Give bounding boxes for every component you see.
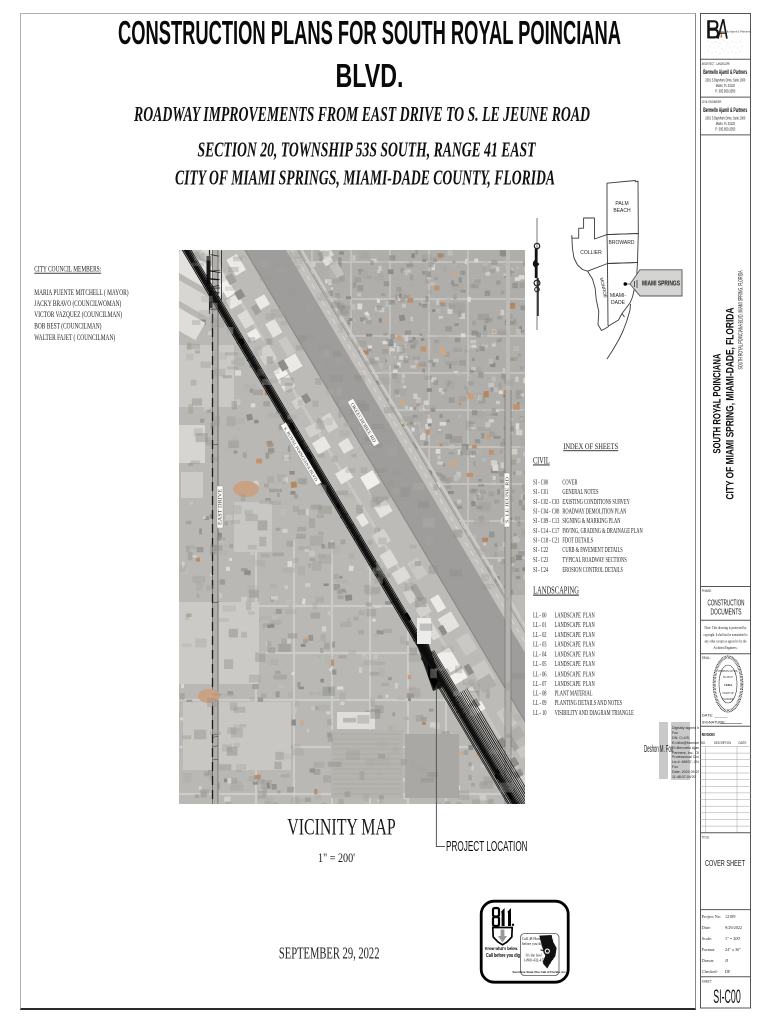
svg-text:LL - 00: LL - 00 <box>533 613 547 620</box>
svg-text:LANDSCAPE PLAN: LANDSCAPE PLAN <box>555 681 596 688</box>
svg-text:Note: This drawing is protecte: Note: This drawing is protected by <box>705 625 747 630</box>
svg-text:MARIA PUENTE MITCHELL ( MAYOR): MARIA PUENTE MITCHELL ( MAYOR) <box>34 288 129 298</box>
svg-text:Drawn:: Drawn: <box>702 958 715 963</box>
svg-text:COLLIER: COLLIER <box>580 250 602 256</box>
svg-text:SIGNING & MARKING PLAN: SIGNING & MARKING PLAN <box>562 518 621 525</box>
svg-text:GENERAL NOTES: GENERAL NOTES <box>562 489 598 496</box>
svg-text:LL - 03: LL - 03 <box>533 642 547 649</box>
svg-text:SI - C04 - C08: SI - C04 - C08 <box>533 509 559 516</box>
svg-text:LL - 05: LL - 05 <box>533 661 547 668</box>
svg-text:BEACH: BEACH <box>613 208 631 214</box>
svg-text:P: 305.859.2050: P: 305.859.2050 <box>715 89 735 94</box>
svg-text:It's the law!: It's the law! <box>526 954 543 958</box>
svg-text:CONSTRUCTION: CONSTRUCTION <box>708 598 745 607</box>
svg-text:1" = 200': 1" = 200' <box>725 936 741 941</box>
svg-text:any other except as agreed to: any other except as agreed to by the <box>705 639 747 644</box>
svg-text:LANDSCAPING: LANDSCAPING <box>533 584 579 596</box>
svg-text:SECTION 20, TOWNSHIP 53S SOUTH: SECTION 20, TOWNSHIP 53S SOUTH, RANGE 41… <box>198 138 537 162</box>
svg-text:PLANT MATERIAL: PLANT MATERIAL <box>555 691 593 698</box>
svg-text:FDOT DETAILS: FDOT DETAILS <box>562 538 593 545</box>
svg-text:Format:: Format: <box>702 947 715 952</box>
svg-text:SEPTEMBER 29, 2022: SEPTEMBER 29, 2022 <box>279 944 380 963</box>
svg-text:SOUTH ROYAL POINCIANA: SOUTH ROYAL POINCIANA <box>712 354 724 454</box>
svg-text:Call before you dig.: Call before you dig. <box>486 953 521 959</box>
svg-text:DF: DF <box>725 969 731 974</box>
svg-text:DATE: DATE <box>739 740 747 745</box>
svg-text:Deshon M. Fox: Deshon M. Fox <box>644 744 673 755</box>
svg-text:Call 48 Hours: Call 48 Hours <box>522 937 543 941</box>
svg-text:Miami, FL 33133: Miami, FL 33133 <box>716 121 735 126</box>
svg-text:S. LE JEUNE RD: S. LE JEUNE RD <box>505 477 510 523</box>
svg-text:LANDSCAPE PLAN: LANDSCAPE PLAN <box>555 622 596 629</box>
svg-text:Project No:: Project No: <box>702 914 721 919</box>
svg-text:MIAMI SPRINGS: MIAMI SPRINGS <box>642 279 680 288</box>
svg-text:1-800-432-4770: 1-800-432-4770 <box>524 959 548 963</box>
svg-text:EXISTING CONDITIONS SURVEY: EXISTING CONDITIONS SURVEY <box>562 499 630 506</box>
svg-text:CIVIL: CIVIL <box>533 455 550 466</box>
svg-text:Bermello Ajamil & Partners: Bermello Ajamil & Partners <box>703 107 747 114</box>
svg-text:SI - C18 - C21: SI - C18 - C21 <box>533 538 559 545</box>
svg-text:INDEX OF SHEETS: INDEX OF SHEETS <box>563 441 618 452</box>
svg-text:LANDSCAPE PLAN: LANDSCAPE PLAN <box>555 642 596 649</box>
svg-text:PHASE:: PHASE: <box>702 588 712 593</box>
svg-text:SI - C22: SI - C22 <box>533 547 548 554</box>
svg-text:SI - C02 - C03: SI - C02 - C03 <box>533 499 559 506</box>
svg-text:ARCHITECT - LANDSCAPE: ARCHITECT - LANDSCAPE <box>702 61 730 66</box>
svg-text:SI-C00: SI-C00 <box>713 987 741 1008</box>
svg-text:P: 305.859.2050: P: 305.859.2050 <box>715 126 735 131</box>
svg-text:NO.: NO. <box>701 740 706 745</box>
svg-text:SI - C09 - C13: SI - C09 - C13 <box>533 518 559 525</box>
svg-text:MONROE: MONROE <box>599 277 608 298</box>
svg-text:LANDSCAPE PLAN: LANDSCAPE PLAN <box>555 661 596 668</box>
svg-text:VICINITY MAP: VICINITY MAP <box>287 815 396 841</box>
svg-text:12189: 12189 <box>725 914 735 919</box>
svg-text:Know what's below.: Know what's below. <box>485 946 518 951</box>
svg-text:ROADWAY IMPROVEMENTS FROM EAST: ROADWAY IMPROVEMENTS FROM EAST DRIVE TO … <box>133 102 590 126</box>
svg-text:COVER SHEET: COVER SHEET <box>705 859 745 868</box>
svg-text:1" = 200': 1" = 200' <box>318 851 355 865</box>
svg-text:Bermello Ajamil & Partners: Bermello Ajamil & Partners <box>703 69 747 76</box>
svg-text:WALTER FAJET ( COUNCILMAN): WALTER FAJET ( COUNCILMAN) <box>34 333 115 343</box>
svg-text:No 66537: No 66537 <box>723 676 734 679</box>
svg-text:DOCUMENTS: DOCUMENTS <box>711 607 742 616</box>
svg-text:SI - C23: SI - C23 <box>533 557 548 564</box>
svg-text:CITY COUNCIL MEMBERS:: CITY COUNCIL MEMBERS: <box>34 264 101 274</box>
svg-text:DESHON M FOX: DESHON M FOX <box>718 670 737 673</box>
svg-text:SI - C24: SI - C24 <box>533 567 548 574</box>
svg-text:BOB BEST (COUNCILMAN): BOB BEST (COUNCILMAN) <box>34 321 102 331</box>
svg-text:LL - 10: LL - 10 <box>533 710 547 717</box>
svg-text:SI - C14 - C17: SI - C14 - C17 <box>533 528 559 535</box>
svg-text:LANDSCAPE PLAN: LANDSCAPE PLAN <box>555 632 596 639</box>
svg-text:PAVING, GRADING & DRAINAGE PLA: PAVING, GRADING & DRAINAGE PLAN <box>562 528 643 535</box>
svg-text:before you dig: before you dig <box>522 942 543 946</box>
svg-text:LL - 04: LL - 04 <box>533 652 547 659</box>
svg-text:9/29/2022: 9/29/2022 <box>725 925 742 930</box>
svg-text:LL - 09: LL - 09 <box>533 700 547 707</box>
svg-text:JACKY BRAVO (COUNCILWOMAN): JACKY BRAVO (COUNCILWOMAN) <box>34 299 121 309</box>
svg-text:JJ: JJ <box>725 958 729 963</box>
svg-text:EROSION CONTROL DETAILS: EROSION CONTROL DETAILS <box>562 567 623 574</box>
svg-text:REVISIONS: REVISIONS <box>702 732 715 737</box>
svg-text:2601 S Bayshore Drive, Suite 1: 2601 S Bayshore Drive, Suite 1000 <box>705 78 745 83</box>
svg-text:STATE OF: STATE OF <box>722 692 734 695</box>
svg-text:CITY OF MIAMI SPRINGS, MIAMI-D: CITY OF MIAMI SPRINGS, MIAMI-DADE COUNTY… <box>175 166 555 190</box>
svg-text:LL - 02: LL - 02 <box>533 632 547 639</box>
svg-text:LANDSCAPE PLAN: LANDSCAPE PLAN <box>555 613 596 620</box>
svg-text:PROJECT LOCATION: PROJECT LOCATION <box>446 838 528 855</box>
svg-text:SEAL:: SEAL: <box>702 655 711 660</box>
svg-text:LL - 01: LL - 01 <box>533 622 547 629</box>
svg-text:MIAMI-: MIAMI- <box>610 293 626 299</box>
svg-text:CEBA: CEBA <box>724 683 733 687</box>
svg-text:SI - C01: SI - C01 <box>533 489 548 496</box>
svg-text:copyright. It shall not be tra: copyright. It shall not be transmitted t… <box>704 632 748 637</box>
svg-text:TITLE:: TITLE: <box>702 834 710 839</box>
svg-text:COVER: COVER <box>562 480 577 487</box>
svg-text:LANDSCAPE PLAN: LANDSCAPE PLAN <box>555 672 596 679</box>
svg-text:DESCRIPTION: DESCRIPTION <box>714 740 731 745</box>
svg-text:Miami, FL 33133: Miami, FL 33133 <box>716 83 735 88</box>
svg-text:ROADWAY DEMOLITION PLAN: ROADWAY DEMOLITION PLAN <box>562 509 627 516</box>
svg-text:FLORIDA: FLORIDA <box>722 698 733 701</box>
svg-text:2601 S Bayshore Drive, Suite 1: 2601 S Bayshore Drive, Suite 1000 <box>705 115 745 120</box>
svg-text:BLVD.: BLVD. <box>336 58 404 95</box>
svg-text:DADE: DADE <box>611 300 626 306</box>
svg-text:Checked:: Checked: <box>702 969 718 974</box>
svg-text:DATE: ______: DATE: ______ <box>702 713 729 718</box>
svg-text:Date:: Date: <box>702 925 711 930</box>
svg-text:CONSTRUCTION PLANS FOR SOUTH R: CONSTRUCTION PLANS FOR SOUTH ROYAL POINC… <box>118 15 621 52</box>
svg-text:TYPICAL ROADWAY SECTIONS: TYPICAL ROADWAY SECTIONS <box>562 557 626 564</box>
svg-text:EAST DRIVE: EAST DRIVE <box>219 489 224 525</box>
svg-text:PALM: PALM <box>615 201 628 207</box>
svg-text:SHEET:: SHEET: <box>702 978 712 983</box>
svg-text:VISIBILITY AND DIAGRAM TRIANGL: VISIBILITY AND DIAGRAM TRIANGLE <box>555 710 635 717</box>
svg-text:BROWARD: BROWARD <box>609 240 635 246</box>
svg-text:CIVIL ENGINEER:: CIVIL ENGINEER: <box>702 99 722 104</box>
svg-text:CURB & PAVEMENT DETAILS: CURB & PAVEMENT DETAILS <box>562 547 622 554</box>
svg-text:LL - 08: LL - 08 <box>533 691 547 698</box>
svg-text:SI - C00: SI - C00 <box>533 480 548 487</box>
svg-text:Architect/Engineers.: Architect/Engineers. <box>714 645 738 650</box>
svg-text:VICTOR VAZQUEZ (COUNCILMAN): VICTOR VAZQUEZ (COUNCILMAN) <box>34 310 122 320</box>
svg-text:24" x 36": 24" x 36" <box>725 947 741 952</box>
svg-text:PLANTING DETAILS AND NOTES: PLANTING DETAILS AND NOTES <box>555 700 623 707</box>
svg-text:LL - 07: LL - 07 <box>533 681 547 688</box>
svg-text:SOUTH ROYAL POINCIANA BLVD, MI: SOUTH ROYAL POINCIANA BLVD, MIAMI SPRING… <box>739 271 745 370</box>
svg-text:Sunshine State One Call of Flo: Sunshine State One Call of Florida, Inc. <box>513 970 567 974</box>
svg-text:LANDSCAPE PLAN: LANDSCAPE PLAN <box>555 652 596 659</box>
svg-text:LL - 06: LL - 06 <box>533 672 547 679</box>
svg-text:Bermello Ajamil & Partners: Bermello Ajamil & Partners <box>719 29 751 33</box>
svg-text:CITY OF MIAMI SPRING, MIAMI-DA: CITY OF MIAMI SPRING, MIAMI-DADE, FLORID… <box>725 308 737 500</box>
svg-text:Scale:: Scale: <box>702 936 712 941</box>
